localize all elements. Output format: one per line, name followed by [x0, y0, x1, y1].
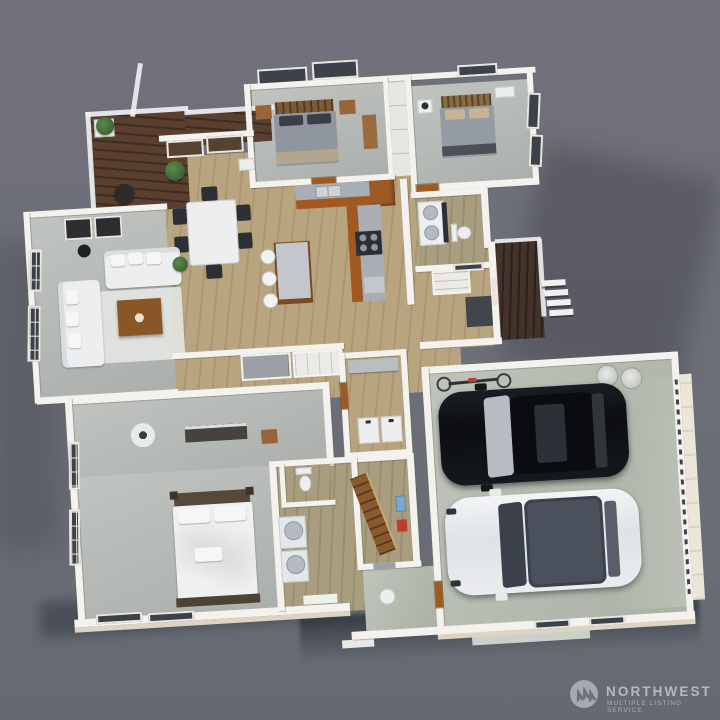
- watermark-brand: NORTHWEST: [606, 684, 712, 699]
- primary-window-2: [69, 510, 80, 566]
- framed-art-1: [64, 217, 93, 241]
- sofa-pillow: [146, 252, 162, 265]
- porch-step: [544, 289, 568, 296]
- scene: NORTHWEST MULTIPLE LISTING SERVICE.: [0, 0, 720, 720]
- sofa-pillow: [65, 289, 79, 305]
- cooktop: [355, 230, 382, 256]
- primary-window-1: [69, 441, 80, 489]
- living-window-2: [27, 306, 40, 362]
- bedroom3-pillow-2: [469, 108, 490, 119]
- sofa-pillow: [65, 311, 79, 327]
- dishwasher-front: [364, 276, 385, 293]
- primary-pillow: [194, 547, 223, 563]
- white-car-headlight: [446, 508, 456, 515]
- bedroom2-pillow-2: [307, 113, 332, 124]
- dining-table: [186, 199, 240, 266]
- white-car-glass-roof: [524, 495, 607, 588]
- heater-zone-floor: [363, 566, 440, 631]
- white-car-windshield: [498, 501, 527, 588]
- black-car-mirror: [475, 383, 487, 391]
- bedroom2-nightstand-2: [339, 100, 356, 115]
- bedroom3-side-window-1: [526, 93, 541, 130]
- porch-step: [547, 299, 571, 306]
- black-car-sunroof: [534, 403, 567, 463]
- sofa-pillow: [128, 252, 144, 265]
- dining-chair: [206, 264, 223, 279]
- bar-cart: [238, 158, 255, 171]
- bedroom3-pillow-1: [445, 109, 466, 120]
- framed-art-2: [94, 215, 123, 239]
- primary-toilet-tank: [295, 467, 311, 475]
- garage-side-door: [435, 581, 444, 607]
- porch-step: [549, 309, 573, 316]
- dining-chair: [172, 208, 187, 225]
- side-door-mat: [342, 639, 374, 649]
- bedroom2-pillow-1: [279, 115, 304, 126]
- primary-bedpost: [170, 491, 178, 499]
- sofa-pillow: [68, 333, 82, 349]
- dining-chair: [238, 232, 253, 249]
- white-car-mirror: [489, 488, 501, 496]
- primary-pillow: [214, 505, 247, 522]
- bedroom2-desk: [362, 114, 378, 149]
- side-table: [261, 429, 278, 444]
- bedroom3-top-window: [457, 63, 498, 77]
- dining-window-2: [206, 135, 244, 154]
- porch-step: [541, 279, 565, 286]
- electrical-panel: [395, 495, 406, 512]
- primary-pillow: [178, 507, 211, 524]
- bicycle-accent: [468, 378, 476, 382]
- washer-controls: [366, 420, 371, 423]
- dining-chair: [236, 204, 251, 221]
- red-wall-box: [397, 519, 408, 532]
- white-car-headlight: [451, 580, 461, 587]
- bedroom2-nightstand-1: [255, 105, 272, 120]
- bedroom3-side-window-2: [529, 134, 543, 167]
- sofa-pillow: [110, 254, 126, 267]
- white-car-mirror: [495, 593, 507, 601]
- living-window-1: [29, 249, 42, 291]
- watermark-tagline: MULTIPLE LISTING SERVICE.: [607, 700, 720, 714]
- shelved-closet: [292, 349, 343, 378]
- dining-window-1: [166, 139, 204, 158]
- bedroom3-dresser: [494, 86, 515, 98]
- dining-chair: [201, 186, 218, 201]
- primary-bedpost: [245, 487, 253, 495]
- sliding-closet: [240, 352, 291, 381]
- floor-plan: [4, 26, 709, 666]
- kitchen-island-top: [276, 242, 311, 300]
- linen-closet: [432, 269, 471, 295]
- entry-mat: [465, 296, 493, 328]
- dryer-controls: [389, 419, 394, 422]
